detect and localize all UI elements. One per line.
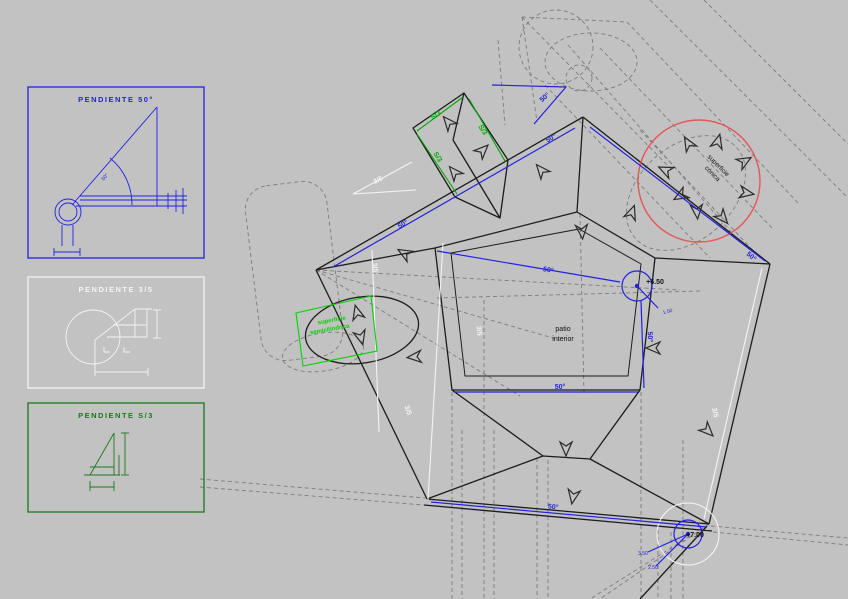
- slope-label-50: 50°: [646, 331, 655, 342]
- slope-label-50: 50°: [396, 218, 409, 230]
- legend-box-title: PENDIENTE 3/5: [79, 285, 154, 294]
- slope-arrow-icon: [699, 422, 717, 440]
- slope-label-50: 50°: [542, 265, 554, 275]
- legend-box-pendiente-35: PENDIENTE 3/5: [28, 277, 204, 388]
- slope-arrow-icon: [739, 186, 755, 200]
- slope-label-50: 50°: [548, 503, 559, 512]
- dim-label: 3.50: [638, 551, 648, 557]
- slope-label-35: 3/5: [372, 175, 384, 186]
- dim-label: 1.50: [662, 308, 673, 316]
- slope-arrow-icon: [407, 350, 422, 363]
- slope-label-35: 3/5: [475, 326, 483, 336]
- slope-arrow-icon: [710, 133, 725, 150]
- slope-label-35: 3/5: [370, 262, 379, 273]
- legend-box-title: PENDIENTE S/3: [78, 411, 154, 420]
- slope-arrow-icon: [566, 489, 580, 505]
- slope-label-35: 3/5: [402, 405, 412, 417]
- cad-canvas: 50° 50° 50° 50° 50° 50° 50° 50° 3/5 3/5 …: [0, 0, 848, 599]
- slope-label-35: 3/5: [710, 407, 719, 418]
- slope-arrow-icon: [532, 161, 550, 179]
- legend-box-pendiente-s3: PENDIENTE S/3: [28, 403, 204, 512]
- dormer-green-edges: [417, 97, 505, 194]
- slope-arrow-icon: [646, 342, 660, 354]
- slope-arrow-icon: [575, 225, 588, 240]
- patio-interior-label: interior: [552, 336, 574, 343]
- legend-box-border: [28, 87, 204, 258]
- level-label-700: +7.00: [686, 532, 704, 539]
- slope-label-50: 50°: [745, 250, 758, 263]
- slope-arrow-icon: [560, 442, 572, 456]
- slope-label-50: 50°: [538, 91, 551, 104]
- slope-arrow-icon: [474, 141, 492, 159]
- roof-outline: [301, 93, 770, 599]
- dim-label: 2.50: [648, 565, 658, 571]
- slope-label-s3: S/3: [430, 110, 443, 122]
- slope-arrows: [349, 113, 755, 505]
- blue-slope-lines: [333, 85, 765, 566]
- legend-box-title: PENDIENTE 50°: [78, 95, 154, 104]
- conical-surface-circle: [638, 120, 760, 242]
- legend-box-pendiente-50: PENDIENTE 50° 50°: [28, 87, 204, 258]
- slope-arrow-icon: [353, 330, 368, 347]
- slope-label-50: 50°: [544, 132, 557, 144]
- patio-interior-label: patio: [555, 326, 570, 333]
- slope-arrow-icon: [445, 163, 463, 181]
- slope-label-50: 50°: [555, 383, 566, 391]
- level-label-650: +6.50: [646, 279, 664, 286]
- slope-arrow-icon: [349, 304, 364, 321]
- superficie-semicilindrica-label: semicilíndrica: [310, 323, 351, 336]
- detail-angle-label: 50°: [101, 173, 110, 183]
- slope-arrow-icon: [395, 244, 413, 261]
- slope-label-s3: S/3: [476, 124, 488, 137]
- construction-lines: [200, 0, 848, 599]
